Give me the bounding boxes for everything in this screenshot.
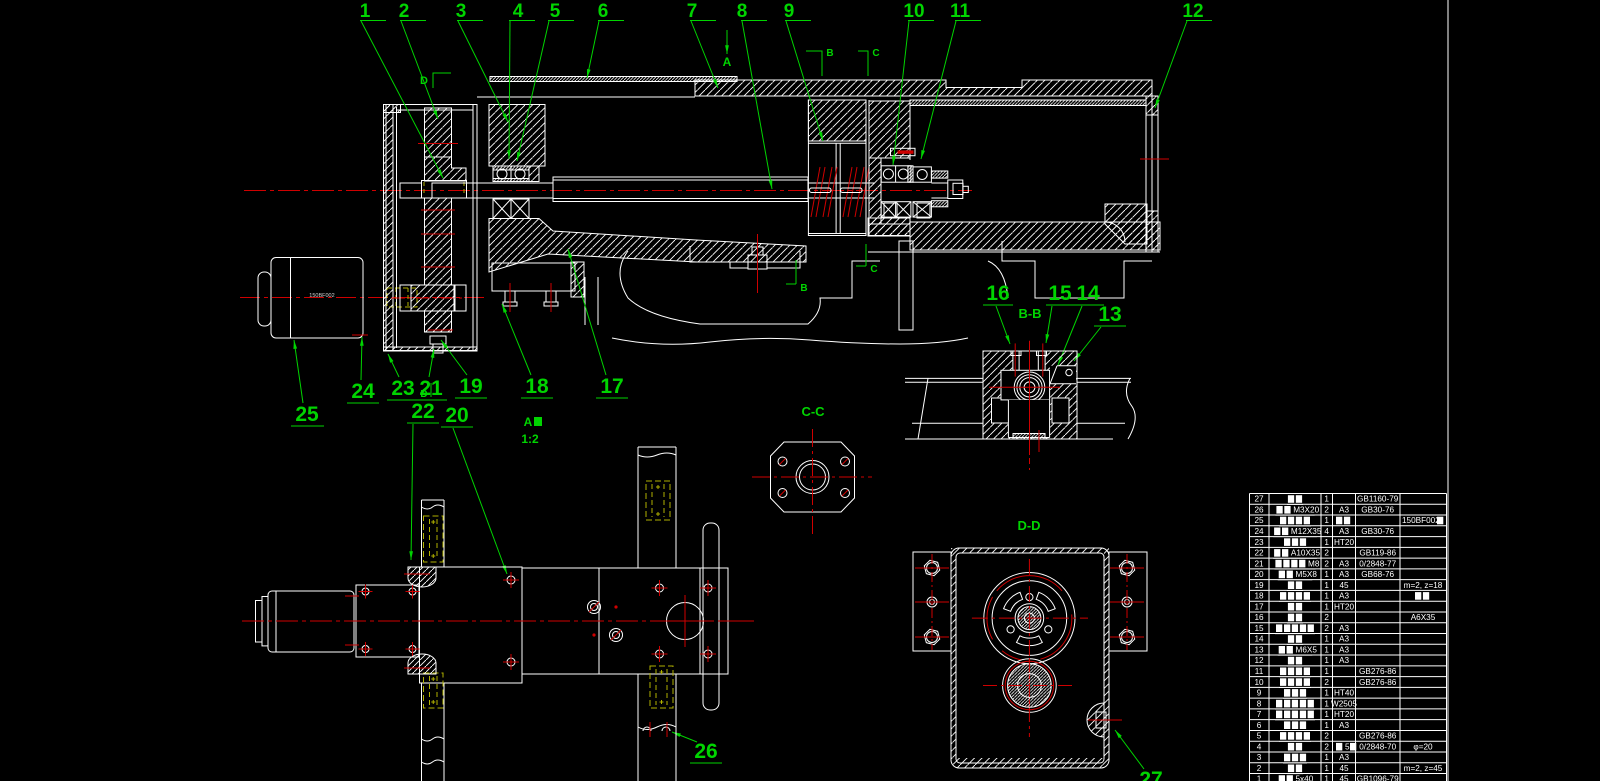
svg-text:A3: A3 xyxy=(1339,570,1349,579)
svg-text:18: 18 xyxy=(1254,592,1264,601)
svg-text:A3: A3 xyxy=(1339,753,1349,762)
svg-text:1: 1 xyxy=(1324,570,1329,579)
svg-text:22: 22 xyxy=(1254,549,1264,558)
svg-text:2: 2 xyxy=(1324,549,1329,558)
svg-text:7: 7 xyxy=(1257,710,1262,719)
svg-text:GB30-76: GB30-76 xyxy=(1361,505,1394,514)
svg-text:25: 25 xyxy=(1254,516,1264,525)
svg-text:45: 45 xyxy=(1339,764,1349,773)
svg-text:5: 5 xyxy=(550,1,561,22)
svg-text:23: 23 xyxy=(1254,538,1264,547)
svg-text:GB30-76: GB30-76 xyxy=(1361,527,1394,536)
svg-text:11: 11 xyxy=(1255,667,1264,676)
svg-text:GB1096-79: GB1096-79 xyxy=(1357,775,1399,781)
svg-text:A3: A3 xyxy=(1339,559,1349,568)
svg-text:25: 25 xyxy=(295,403,319,426)
svg-text:GB1160-79: GB1160-79 xyxy=(1357,495,1399,504)
svg-text:150BF002: 150BF002 xyxy=(309,293,334,299)
svg-text:2: 2 xyxy=(1324,678,1329,687)
svg-text:26: 26 xyxy=(694,740,717,763)
svg-text:M3X20: M3X20 xyxy=(1293,505,1319,514)
svg-text:A: A xyxy=(524,415,533,429)
svg-text:21: 21 xyxy=(1254,559,1264,568)
svg-text:1: 1 xyxy=(1324,538,1329,547)
svg-text:24: 24 xyxy=(351,380,375,403)
svg-text:GB68-76: GB68-76 xyxy=(1361,570,1394,579)
svg-text:0/2848-77: 0/2848-77 xyxy=(1359,559,1396,568)
svg-text:23: 23 xyxy=(391,377,414,400)
svg-text:19: 19 xyxy=(1254,581,1264,590)
svg-text:1: 1 xyxy=(1257,775,1262,781)
svg-text:1: 1 xyxy=(1324,516,1329,525)
svg-text:16: 16 xyxy=(1254,613,1264,622)
svg-text:45: 45 xyxy=(1339,775,1349,781)
svg-text:13: 13 xyxy=(1098,303,1121,326)
svg-text:HT20: HT20 xyxy=(1334,602,1354,611)
svg-text:2: 2 xyxy=(1324,732,1329,741)
svg-text:5: 5 xyxy=(1345,742,1350,751)
svg-text:1: 1 xyxy=(1324,753,1329,762)
svg-text:C: C xyxy=(870,264,877,275)
svg-text:1: 1 xyxy=(1324,764,1329,773)
svg-text:2: 2 xyxy=(399,1,410,22)
svg-text:3: 3 xyxy=(456,1,467,22)
svg-text:24: 24 xyxy=(1254,527,1264,536)
svg-text:1: 1 xyxy=(1324,495,1329,504)
svg-text:1: 1 xyxy=(1324,689,1329,698)
svg-text:17: 17 xyxy=(600,375,623,398)
svg-text:17: 17 xyxy=(1254,602,1264,611)
svg-text:15: 15 xyxy=(1254,624,1264,633)
svg-text:9: 9 xyxy=(784,1,795,22)
svg-text:12: 12 xyxy=(1182,1,1203,22)
svg-text:18: 18 xyxy=(525,375,549,398)
svg-text:HT20: HT20 xyxy=(1334,538,1354,547)
svg-text:B-B: B-B xyxy=(1018,306,1041,321)
svg-text:A3: A3 xyxy=(1339,592,1349,601)
svg-text:M6X5: M6X5 xyxy=(1296,645,1318,654)
svg-text:20: 20 xyxy=(445,404,468,427)
svg-text:9: 9 xyxy=(1257,689,1262,698)
svg-text:M5X8: M5X8 xyxy=(1296,570,1318,579)
svg-text:26: 26 xyxy=(1254,505,1264,514)
svg-text:A3: A3 xyxy=(1339,645,1349,654)
svg-text:1:2: 1:2 xyxy=(521,432,539,446)
svg-text:W2505: W2505 xyxy=(1331,699,1357,708)
svg-text:m=2, z=45: m=2, z=45 xyxy=(1404,764,1443,773)
svg-text:2: 2 xyxy=(1257,764,1262,773)
svg-text:21: 21 xyxy=(419,377,443,400)
svg-text:1: 1 xyxy=(1324,721,1329,730)
svg-text:A10X35: A10X35 xyxy=(1291,549,1321,558)
svg-text:2: 2 xyxy=(1324,624,1329,633)
svg-text:150BF002: 150BF002 xyxy=(1402,516,1440,525)
svg-text:27: 27 xyxy=(1139,768,1162,781)
svg-text:14: 14 xyxy=(1254,635,1264,644)
svg-text:GB276-86: GB276-86 xyxy=(1359,667,1397,676)
svg-text:2: 2 xyxy=(1324,742,1329,751)
svg-text:1: 1 xyxy=(1324,699,1329,708)
svg-text:16: 16 xyxy=(986,282,1009,305)
svg-text:φ=20: φ=20 xyxy=(1413,742,1433,751)
svg-text:3: 3 xyxy=(1257,753,1262,762)
svg-text:4: 4 xyxy=(1324,527,1329,536)
svg-text:1: 1 xyxy=(1324,581,1329,590)
svg-text:19: 19 xyxy=(459,375,482,398)
svg-text:m=2, z=18: m=2, z=18 xyxy=(1404,581,1443,590)
svg-text:A3: A3 xyxy=(1339,721,1349,730)
svg-text:12: 12 xyxy=(1254,656,1264,665)
svg-text:1: 1 xyxy=(1324,592,1329,601)
svg-text:A: A xyxy=(723,55,732,69)
svg-text:D-D: D-D xyxy=(1017,518,1040,533)
svg-text:2: 2 xyxy=(1324,559,1329,568)
svg-text:C-C: C-C xyxy=(801,404,825,419)
svg-text:11: 11 xyxy=(950,1,971,22)
svg-text:4: 4 xyxy=(513,1,524,22)
svg-text:20: 20 xyxy=(1254,570,1264,579)
svg-text:10: 10 xyxy=(1254,678,1264,687)
svg-text:1: 1 xyxy=(1324,775,1329,781)
svg-text:4: 4 xyxy=(1257,742,1262,751)
svg-text:HT40: HT40 xyxy=(1334,689,1354,698)
svg-text:6: 6 xyxy=(598,1,609,22)
svg-text:6: 6 xyxy=(1257,721,1262,730)
svg-text:GB276-86: GB276-86 xyxy=(1359,732,1397,741)
svg-text:15: 15 xyxy=(1048,282,1072,305)
svg-text:2: 2 xyxy=(1324,505,1329,514)
svg-text:A3: A3 xyxy=(1339,656,1349,665)
svg-text:8: 8 xyxy=(1257,699,1262,708)
svg-text:B: B xyxy=(800,283,807,294)
svg-text:1: 1 xyxy=(1324,602,1329,611)
svg-text:A3: A3 xyxy=(1339,505,1349,514)
svg-text:A3: A3 xyxy=(1339,527,1349,536)
svg-text:GB119-86: GB119-86 xyxy=(1359,549,1396,558)
svg-text:1: 1 xyxy=(1324,635,1329,644)
svg-text:1: 1 xyxy=(360,1,371,22)
svg-text:1: 1 xyxy=(1324,667,1329,676)
svg-text:27: 27 xyxy=(1254,495,1264,504)
svg-text:A3: A3 xyxy=(1339,635,1349,644)
svg-text:1: 1 xyxy=(1324,656,1329,665)
svg-text:M12X35: M12X35 xyxy=(1291,527,1322,536)
svg-text:14: 14 xyxy=(1076,282,1100,305)
svg-text:C: C xyxy=(872,48,879,59)
svg-text:A6X35: A6X35 xyxy=(1411,613,1436,622)
svg-text:10: 10 xyxy=(903,1,924,22)
svg-text:2: 2 xyxy=(1324,613,1329,622)
svg-text:M8: M8 xyxy=(1308,559,1320,568)
svg-text:HT20: HT20 xyxy=(1334,710,1354,719)
svg-text:1: 1 xyxy=(1324,645,1329,654)
svg-text:45: 45 xyxy=(1339,581,1349,590)
svg-text:B: B xyxy=(826,48,833,59)
svg-text:13: 13 xyxy=(1254,645,1264,654)
svg-text:8: 8 xyxy=(737,1,748,22)
svg-text:22: 22 xyxy=(411,400,434,423)
svg-text:A3: A3 xyxy=(1339,624,1349,633)
svg-text:GB276-86: GB276-86 xyxy=(1359,678,1397,687)
svg-text:0/2848-70: 0/2848-70 xyxy=(1359,742,1396,751)
svg-text:7: 7 xyxy=(687,1,698,22)
svg-text:5x40: 5x40 xyxy=(1296,775,1314,781)
svg-text:5: 5 xyxy=(1257,732,1262,741)
svg-text:1: 1 xyxy=(1324,710,1329,719)
